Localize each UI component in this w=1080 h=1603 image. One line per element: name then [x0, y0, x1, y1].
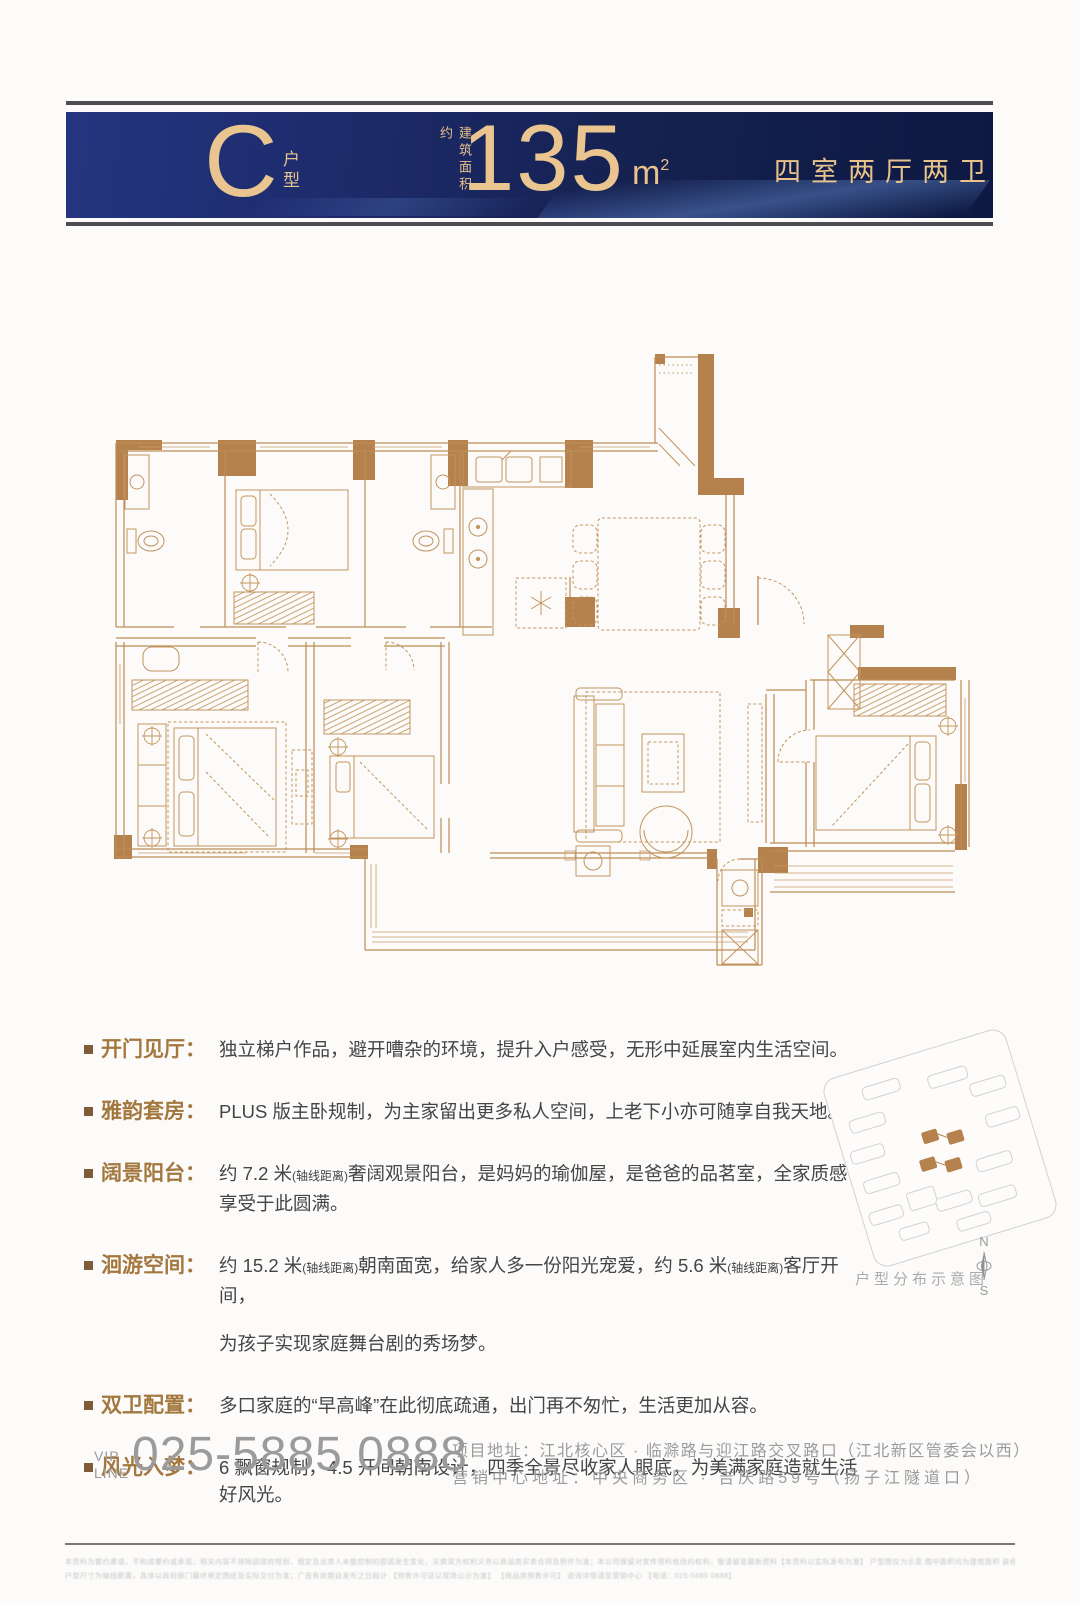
- disclaimer-line: 本资料为要约邀请，不构成要约或承诺；相关内容不排除因政府规划、规定及出卖人未能控…: [65, 1557, 1015, 1568]
- site-map-caption: 户型分布示意图: [855, 1268, 988, 1289]
- wardrobes: [132, 592, 946, 734]
- feature-text: PLUS 版主卧规制，为主家留出更多私人空间，上老下小亦可随享自我天地。: [219, 1098, 846, 1125]
- furniture-dashed: [168, 494, 908, 926]
- unit-letter: C: [204, 112, 278, 216]
- vip-line-label: VIPLINE: [94, 1448, 129, 1482]
- compass-north-label: N: [972, 1234, 996, 1249]
- area-value: 135: [462, 112, 625, 214]
- floor-plan: [110, 332, 982, 980]
- header-bottom-rule: [66, 222, 993, 226]
- feature-item: 阔景阳台：约 7.2 米(轴线距离)奢阔观景阳台，是妈妈的瑜伽屋，是爸爸的品茗室…: [84, 1160, 864, 1217]
- layout-label: 四室两厅两卫: [774, 150, 993, 189]
- feature-label: 阔景阳台：: [101, 1160, 219, 1187]
- feature-label: 雅韵套房：: [101, 1098, 219, 1125]
- feature-item: 洄游空间：约 15.2 米(轴线距离)朝南面宽，给家人多一份阳光宠爱，约 5.6…: [84, 1252, 864, 1357]
- feature-text: 约 15.2 米(轴线距离)朝南面宽，给家人多一份阳光宠爱，约 5.6 米(轴线…: [219, 1252, 864, 1357]
- header-banner: C 户型 建筑面积约 135 m2 四室两厅两卫: [66, 112, 993, 218]
- disclaimer-line: 户型尺寸为轴线距离，具体以政府部门最终审定图纸及实际交付为准；广告有效期自发布之…: [65, 1571, 1015, 1582]
- feature-item: 双卫配置：多口家庭的“早高峰”在此彻底疏通，出门再不匆忙，生活更加从容。: [84, 1392, 864, 1419]
- header-top-rule: [66, 101, 993, 105]
- site-map: [822, 1028, 1057, 1278]
- bullet-square-icon: [84, 1169, 93, 1178]
- address-block: 项目地址：江北核心区 · 临滁路与迎江路交叉路口（江北新区管委会以西） 营销中心…: [452, 1438, 1031, 1492]
- feature-text: 多口家庭的“早高峰”在此彻底疏通，出门再不匆忙，生活更加从容。: [219, 1392, 768, 1419]
- feature-label: 开门见厅：: [101, 1036, 219, 1063]
- flyer-page: C 户型 建筑面积约 135 m2 四室两厅两卫: [0, 0, 1080, 1603]
- feature-text: 约 7.2 米(轴线距离)奢阔观景阳台，是妈妈的瑜伽屋，是爸爸的品茗室，全家质感…: [219, 1160, 864, 1217]
- bullet-square-icon: [84, 1045, 93, 1054]
- sales-center-address: 营销中心地址：中央商务区 · 吉庆路59号（扬子江隧道口）: [452, 1465, 1031, 1492]
- footer-rule: [65, 1543, 1015, 1545]
- bullet-square-icon: [84, 1261, 93, 1270]
- feature-text: 独立梯户作品，避开嘈杂的环境，提升入户感受，无形中延展室内生活空间。: [219, 1036, 848, 1063]
- shafts: [659, 365, 860, 709]
- unit-label: 户型: [283, 149, 303, 191]
- bullet-square-icon: [84, 1401, 93, 1410]
- feature-item: 雅韵套房：PLUS 版主卧规制，为主家留出更多私人空间，上老下小亦可随享自我天地…: [84, 1098, 864, 1125]
- feature-label: 洄游空间：: [101, 1252, 219, 1279]
- feature-item: 开门见厅：独立梯户作品，避开嘈杂的环境，提升入户感受，无形中延展室内生活空间。: [84, 1036, 864, 1063]
- area-unit: m2: [632, 154, 669, 193]
- project-address: 项目地址：江北核心区 · 临滁路与迎江路交叉路口（江北新区管委会以西）: [452, 1438, 1031, 1465]
- vip-phone-number: 025-5885 0888: [132, 1425, 468, 1485]
- feature-label: 双卫配置：: [101, 1392, 219, 1419]
- bullet-square-icon: [84, 1463, 93, 1472]
- feature-text-continued: 为孩子实现家庭舞台剧的秀场梦。: [219, 1330, 864, 1357]
- bullet-square-icon: [84, 1107, 93, 1116]
